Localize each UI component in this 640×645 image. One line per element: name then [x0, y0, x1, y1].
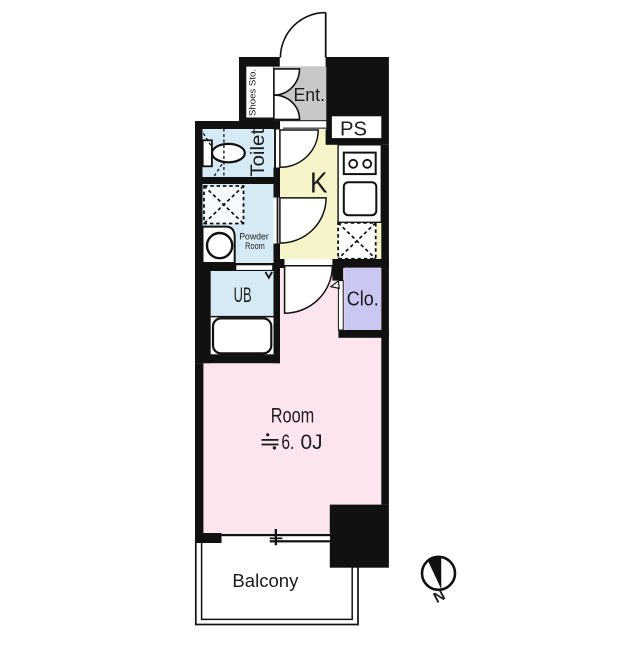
svg-text:Clo.: Clo.: [347, 289, 379, 311]
svg-text:Ent.: Ent.: [294, 84, 326, 105]
svg-text:Shoes Sto.: Shoes Sto.: [248, 69, 259, 116]
svg-text:K: K: [310, 168, 328, 200]
svg-text:Balcony: Balcony: [232, 570, 299, 591]
svg-text:Room: Room: [271, 405, 315, 428]
svg-text:Room: Room: [245, 241, 265, 251]
svg-text:0J: 0J: [301, 431, 323, 454]
svg-text:PS: PS: [340, 119, 367, 141]
svg-text:Toilet: Toilet: [248, 128, 269, 177]
svg-text:6.: 6.: [281, 431, 294, 454]
svg-text:UB: UB: [234, 284, 252, 307]
